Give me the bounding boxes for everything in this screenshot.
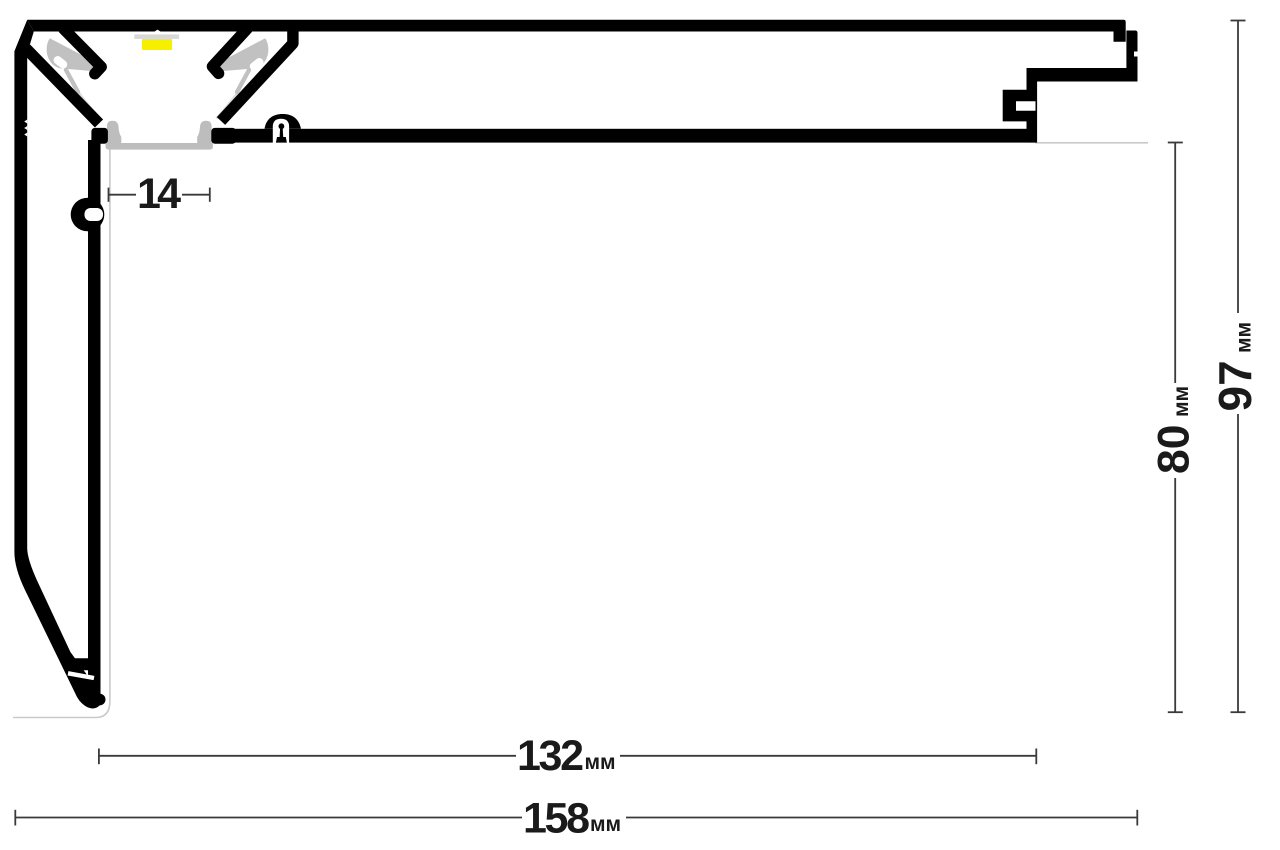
svg-text:мм: мм [590,813,621,836]
svg-text:97: 97 [1209,360,1261,411]
svg-text:14: 14 [137,170,181,218]
svg-text:80: 80 [1150,425,1199,475]
svg-text:мм: мм [585,751,616,774]
svg-text:мм: мм [1233,322,1256,353]
svg-text:мм: мм [1170,386,1193,417]
svg-text:132: 132 [517,732,584,780]
svg-text:158: 158 [523,795,590,843]
